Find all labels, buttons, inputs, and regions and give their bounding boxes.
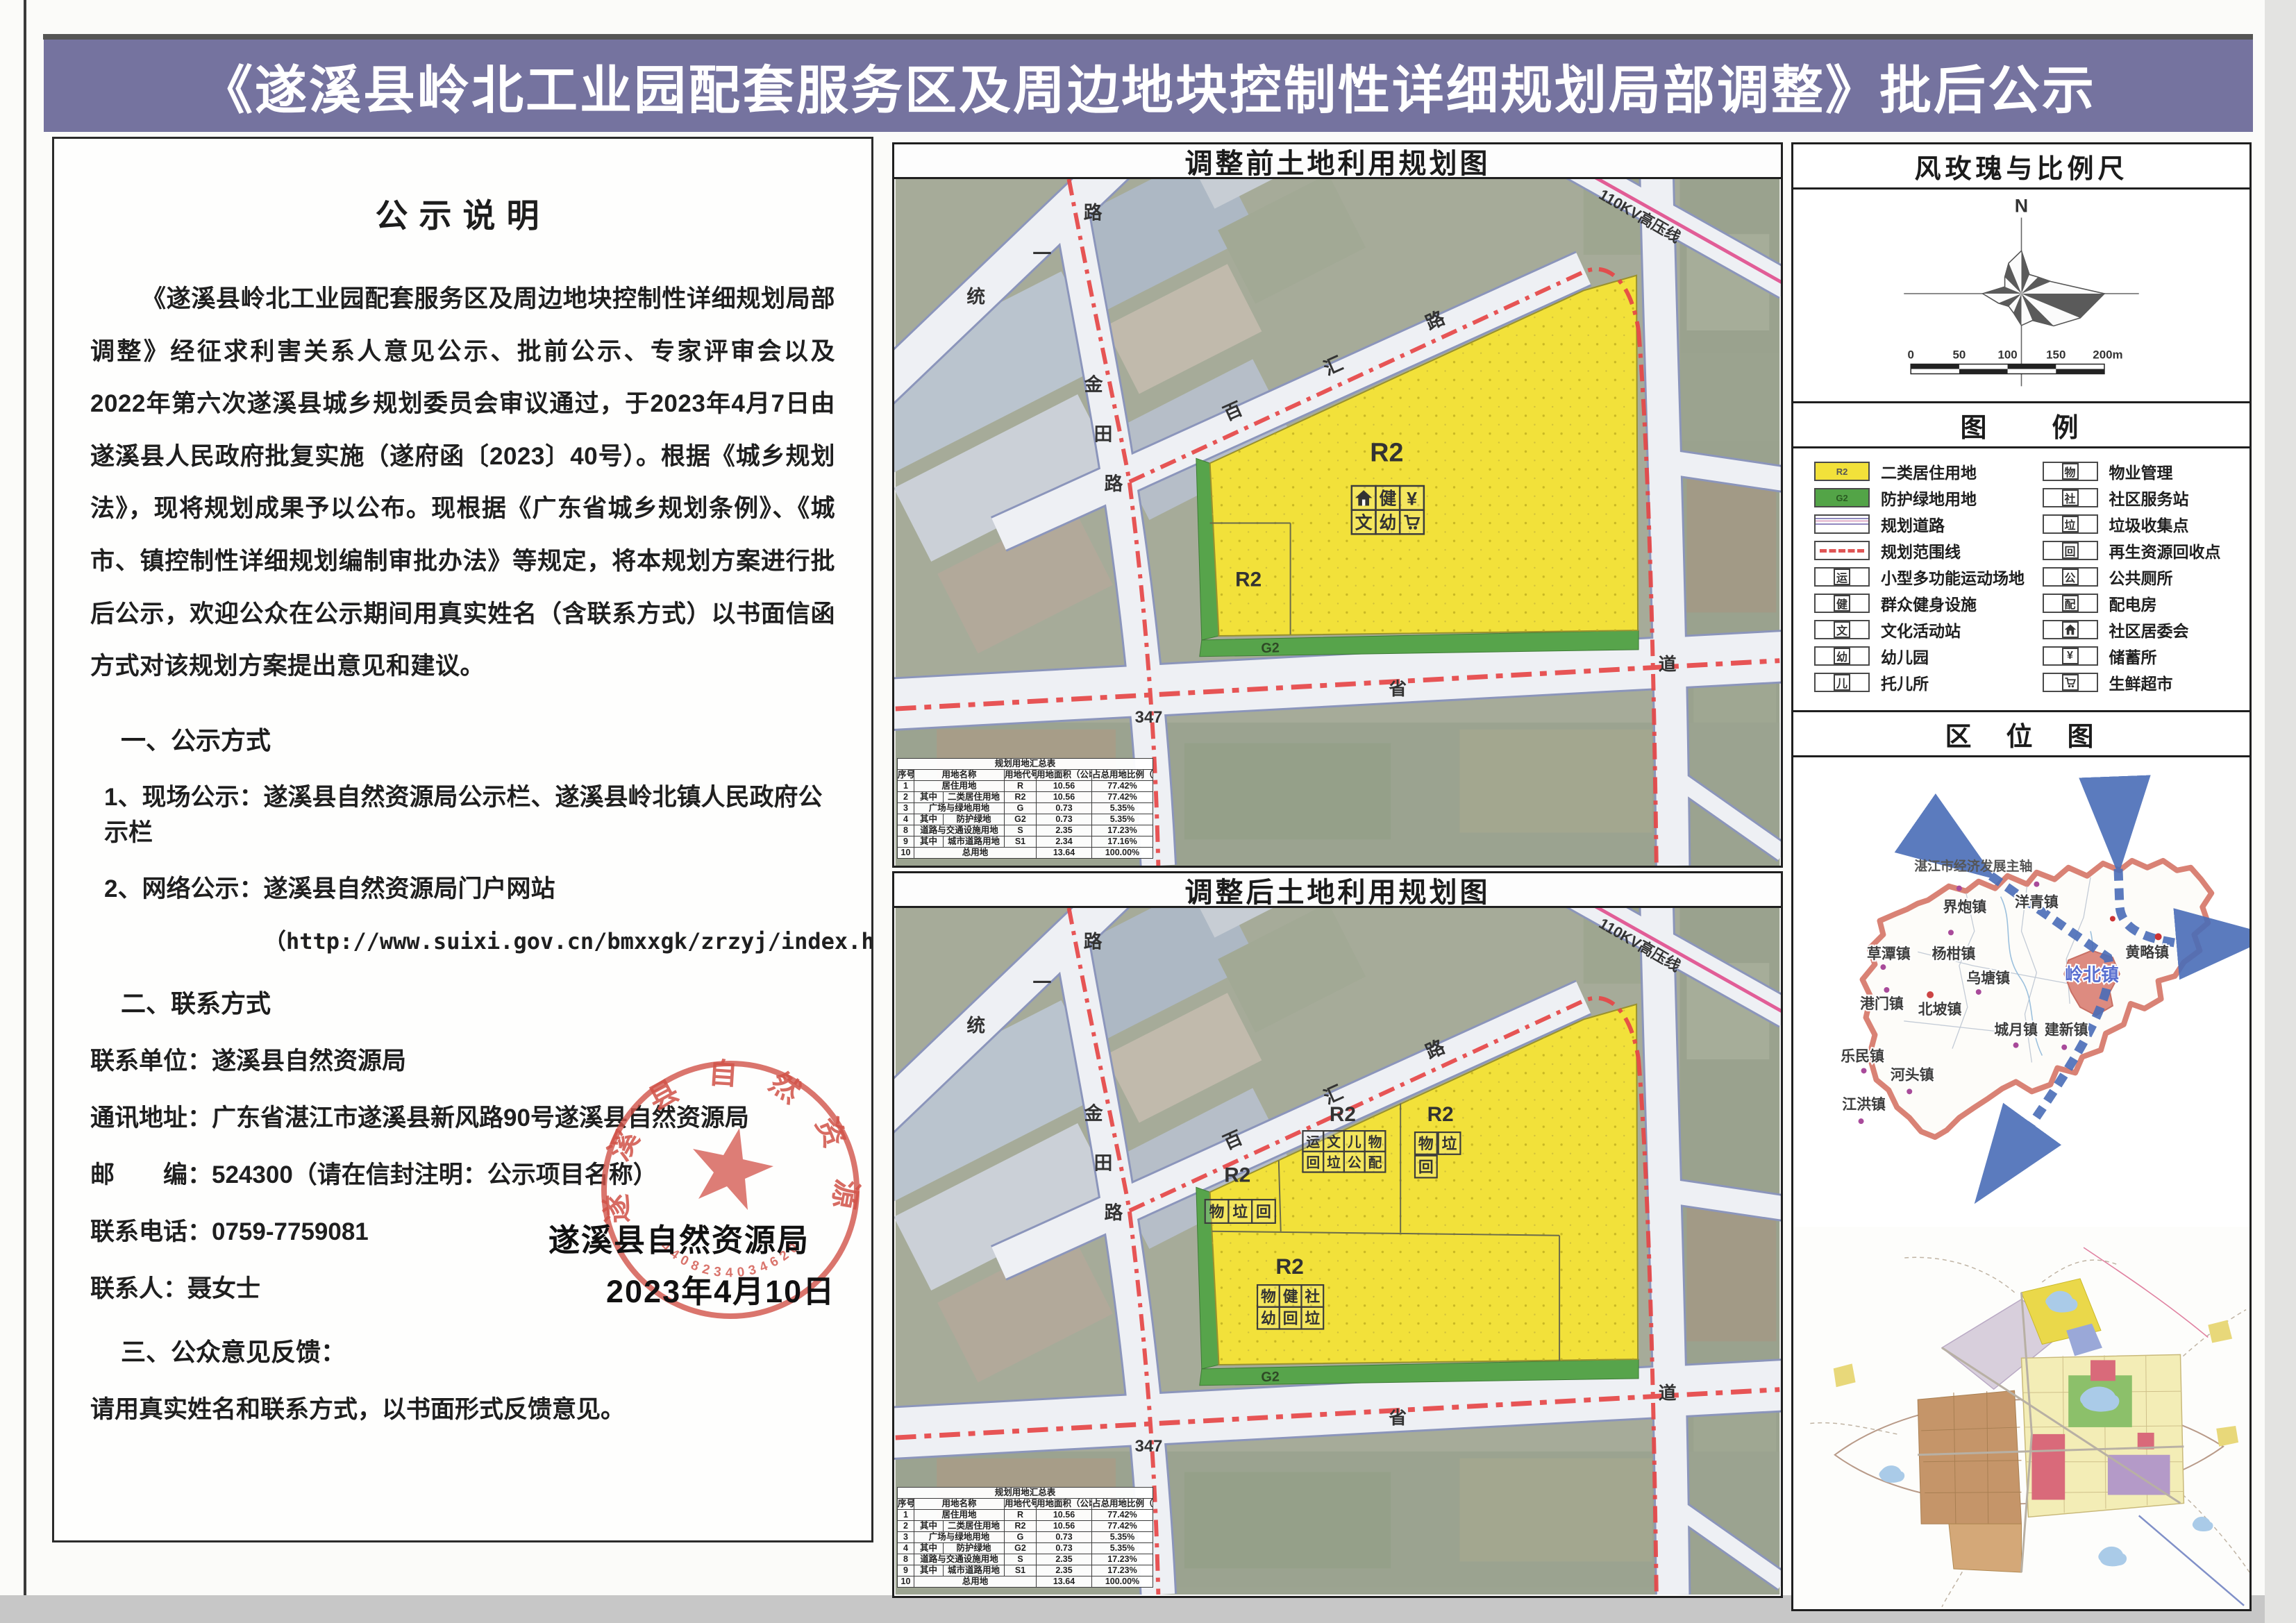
district-brown — [1918, 1390, 2021, 1524]
svg-text:100: 100 — [1997, 348, 2017, 362]
svg-text:儿: 儿 — [1347, 1135, 1361, 1150]
svg-text:物: 物 — [1209, 1203, 1225, 1220]
legend-right-column: 物 物业管理 社 社区服务站 垃 垃圾收集点 回 再生资源回收点 — [2022, 458, 2250, 696]
supermarket-icon — [2062, 674, 2079, 691]
page-title: 《遂溪县岭北工业园配套服务区及周边地块控制性详细规划局部调整》批后公示 — [201, 48, 2096, 124]
table-row: 1居住用地R10.5677.42% — [898, 781, 1153, 792]
svg-text:0: 0 — [1908, 348, 1914, 362]
facility-icon-grid: 健 ¥ 文 幼 — [1352, 486, 1424, 534]
fitness-icon: 健 — [1834, 595, 1850, 612]
table-cell: G — [1005, 1532, 1037, 1543]
legend-item-property: 物 物业管理 — [2022, 458, 2250, 485]
table-cell: 100.00% — [1092, 848, 1153, 859]
table-cell: 77.42% — [1092, 1510, 1153, 1521]
svg-text:物: 物 — [1261, 1288, 1276, 1305]
table-row: 2其中二类居住用地R210.5677.42% — [898, 1521, 1153, 1532]
community-committee-icon — [2062, 621, 2079, 638]
seal-date-line: 2023年4月10日 — [606, 1266, 835, 1311]
table-cell: 道路与交通设施用地 — [914, 825, 1005, 836]
svg-text:200m: 200m — [2093, 348, 2122, 362]
notice-heading: 公示说明 — [90, 189, 835, 237]
svg-text:配: 配 — [1368, 1156, 1382, 1171]
svg-text:垃: 垃 — [1305, 1310, 1320, 1327]
table-cell: 3 — [898, 1532, 914, 1543]
table-cell: 二类居住用地 — [944, 792, 1005, 803]
feedback-line: 请用真实姓名和联系方式，以书面形式反馈意见。 — [90, 1390, 835, 1425]
table-cell: 8 — [898, 1554, 914, 1565]
north-label: N — [2015, 196, 2028, 217]
svg-text:洋青镇: 洋青镇 — [2015, 894, 2059, 911]
table-cell: 规划用地汇总表 — [898, 759, 1153, 770]
table-row: 规划用地汇总表 — [898, 1488, 1153, 1499]
table-cell: 防护绿地 — [944, 814, 1005, 825]
r2-bottom-label: R2 — [1275, 1254, 1304, 1279]
svg-text:路: 路 — [1084, 201, 1103, 223]
table-cell: 2.35 — [1037, 1565, 1092, 1576]
map-after-area: 统 一 路 金 田 路 百 汇 路 110KV高压线 347 省 道 G2 R2… — [894, 908, 1781, 1595]
table-cell: 10 — [898, 848, 914, 859]
svg-text:乐民镇: 乐民镇 — [1841, 1049, 1884, 1065]
svg-text:道: 道 — [1659, 1383, 1677, 1404]
table-cell: 13.64 — [1037, 848, 1092, 859]
table-cell: 其中 — [914, 1543, 944, 1554]
table-cell: 77.42% — [1092, 792, 1153, 803]
table-cell: 10.56 — [1037, 1510, 1092, 1521]
table-cell: 4 — [898, 1543, 914, 1554]
windrose-graphic: N 0 50 100 150 200m — [1793, 190, 2249, 401]
table-cell: 100.00% — [1092, 1576, 1153, 1588]
svg-text:幼: 幼 — [1379, 513, 1396, 532]
landuse-summary-table-after: 规划用地汇总表序号用地名称用地代号用地面积（公顷）占总用地比例（%）1居住用地R… — [897, 1487, 1153, 1588]
svg-text:垃: 垃 — [1442, 1135, 1457, 1152]
boundary-swatch — [1814, 541, 1870, 560]
table-cell: 5.35% — [1092, 1543, 1153, 1554]
svg-text:物: 物 — [1418, 1135, 1434, 1152]
road-swatch — [1814, 514, 1870, 534]
table-cell: 用地代号 — [1005, 770, 1037, 781]
legend-item-road: 规划道路 — [1793, 511, 2022, 537]
section1-item1: 1、现场公示：遂溪县自然资源局公示栏、遂溪县岭北镇人民政府公示栏 — [104, 777, 835, 848]
legend-item-boundary: 规划范围线 — [1793, 537, 2022, 564]
svg-text:一: 一 — [1032, 973, 1051, 993]
table-cell: 其中 — [914, 1565, 944, 1576]
property-icon: 物 — [2062, 463, 2079, 480]
table-row: 3广场与绿地用地G0.735.35% — [898, 1532, 1153, 1543]
table-cell: 序号 — [898, 1499, 914, 1510]
table-cell: 占总用地比例（%） — [1092, 1499, 1153, 1510]
contact-unit: 联系单位：遂溪县自然资源局 — [90, 1041, 835, 1077]
table-cell: 77.42% — [1092, 1521, 1153, 1532]
table-cell: 3 — [898, 803, 914, 814]
table-cell: 2.34 — [1037, 836, 1092, 848]
table-cell: 用地代号 — [1005, 1499, 1037, 1510]
table-cell: 13.64 — [1037, 1576, 1092, 1588]
svg-text:江洪镇: 江洪镇 — [1842, 1097, 1886, 1113]
svg-text:界炮镇: 界炮镇 — [1943, 899, 1987, 916]
legend-item-fitness: 健 群众健身设施 — [1793, 590, 2022, 616]
table-row: 8道路与交通设施用地S2.3517.23% — [898, 825, 1153, 836]
kindergarten-icon: 幼 — [1834, 648, 1850, 664]
district-brown-south — [1949, 1524, 2022, 1572]
r2-right-label: R2 — [1427, 1103, 1454, 1126]
table-cell: 1 — [898, 781, 914, 792]
map-before-title: 调整前土地利用规划图 — [1185, 141, 1491, 181]
table-cell: 0.73 — [1037, 814, 1092, 825]
table-cell: 用地面积（公顷） — [1037, 770, 1092, 781]
r2-left-label: R2 — [1224, 1163, 1250, 1186]
lingbei-label: 岭北镇 — [2065, 965, 2119, 985]
table-row: 序号用地名称用地代号用地面积（公顷）占总用地比例（%） — [898, 770, 1153, 781]
svg-text:50: 50 — [1953, 348, 1966, 362]
map-after-titlebar: 调整后土地利用规划图 — [894, 873, 1781, 908]
svg-text:北坡镇: 北坡镇 — [1918, 1001, 1962, 1018]
location-header: 区 位 图 — [1793, 712, 2249, 757]
table-cell: R — [1005, 781, 1037, 792]
table-cell: 5.35% — [1092, 1532, 1153, 1543]
table-row: 3广场与绿地用地G0.735.35% — [898, 803, 1153, 814]
legend-item-sports: 运 小型多功能运动场地 — [1793, 564, 2022, 590]
legend-item-garbage: 垃 垃圾收集点 — [2022, 511, 2250, 537]
table-cell: 0.73 — [1037, 803, 1092, 814]
svg-text:健: 健 — [1283, 1288, 1298, 1305]
wind-rose-icon — [1983, 251, 2104, 326]
section1-item2: 2、网络公示：遂溪县自然资源局门户网站 — [104, 869, 835, 905]
table-cell: 城市道路用地 — [944, 1565, 1005, 1576]
table-cell: 17.23% — [1092, 825, 1153, 836]
table-cell: 占总用地比例（%） — [1092, 770, 1153, 781]
section2-title: 二、联系方式 — [121, 984, 835, 1020]
section3-title: 三、公众意见反馈： — [121, 1332, 835, 1368]
table-cell: 4 — [898, 814, 914, 825]
axis-label: 湛江市经济发展主轴 — [1914, 858, 2032, 874]
table-row: 10总用地13.64100.00% — [898, 848, 1153, 859]
table-row: 8道路与交通设施用地S2.3517.23% — [898, 1554, 1153, 1565]
r2-swatch: R2 — [1814, 462, 1870, 481]
svg-text:金: 金 — [1084, 1102, 1103, 1124]
svg-text:建新镇: 建新镇 — [2045, 1022, 2088, 1038]
windrose-header: 风玫瑰与比例尺 — [1793, 144, 2249, 190]
svg-text:物: 物 — [1368, 1134, 1382, 1150]
table-row: 9其中城市道路用地S12.3417.16% — [898, 836, 1153, 848]
svg-text:¥: ¥ — [1407, 489, 1417, 510]
svg-text:省: 省 — [1389, 679, 1407, 699]
legend-item-savings: ¥ 储蓄所 — [2022, 643, 2250, 669]
svg-text:G2: G2 — [1261, 640, 1280, 656]
svg-text:垃: 垃 — [1232, 1203, 1248, 1220]
table-cell: 5.35% — [1092, 803, 1153, 814]
legend-item-kindergarten: 幼 幼儿园 — [1793, 643, 2022, 669]
table-cell: 9 — [898, 836, 914, 848]
table-cell: 其中 — [914, 1521, 944, 1532]
table-cell: 总用地 — [914, 1576, 1037, 1588]
legend-item-committee: 社区居委会 — [2022, 616, 2250, 643]
svg-text:路: 路 — [1084, 930, 1103, 952]
table-cell: 防护绿地 — [944, 1543, 1005, 1554]
table-cell: 其中 — [914, 836, 944, 848]
table-row: 1居住用地R10.5677.42% — [898, 1510, 1153, 1521]
map-before-area: 统 一 路 金 田 路 百 汇 路 110KV高压线 347 省 道 G2 R2… — [894, 179, 1781, 866]
table-cell: 二类居住用地 — [944, 1521, 1005, 1532]
legend-item-recycle: 回 再生资源回收点 — [2022, 537, 2250, 564]
svg-text:黄略镇: 黄略镇 — [2125, 944, 2169, 961]
table-row: 9其中城市道路用地S12.3517.23% — [898, 1565, 1153, 1576]
table-cell: 1 — [898, 1510, 914, 1521]
svg-text:路: 路 — [1105, 1202, 1123, 1223]
legend-item-g2: G2 防护绿地用地 — [1793, 485, 2022, 511]
master-plan-minimap — [1793, 1226, 2249, 1609]
svg-text:城月镇: 城月镇 — [1994, 1022, 2038, 1038]
legend-item-toilet: 公 公共厕所 — [2022, 564, 2250, 590]
table-cell: G — [1005, 803, 1037, 814]
windrose-title: 风玫瑰与比例尺 — [1914, 147, 2128, 185]
g2-swatch: G2 — [1814, 488, 1870, 507]
legend-left-column: R2 二类居住用地 G2 防护绿地用地 规划道路 规划范围线 — [1793, 458, 2022, 696]
map-before-titlebar: 调整前土地利用规划图 — [894, 144, 1781, 179]
right-column: 风玫瑰与比例尺 N 0 50 100 150 200m — [1791, 142, 2252, 1611]
legend-title: 图 例 — [1960, 406, 2082, 444]
scanned-notice-page: 《遂溪县岭北工业园配套服务区及周边地块控制性详细规划局部调整》批后公示 公示说明… — [0, 0, 2296, 1623]
legend-item-nursery: 儿 托儿所 — [1793, 669, 2022, 696]
legend-header: 图 例 — [1793, 403, 2249, 448]
legend-item-culture: 文 文化活动站 — [1793, 616, 2022, 643]
notice-paragraph: 《遂溪县岭北工业园配套服务区及周边地块控制性详细规划局部调整》经征求利害关系人意… — [90, 273, 835, 693]
svg-text:幼: 幼 — [1261, 1310, 1276, 1327]
r2-sub-label: R2 — [1235, 569, 1262, 591]
table-cell: S — [1005, 825, 1037, 836]
power-room-icon: 配 — [2062, 595, 2079, 612]
table-row: 序号用地名称用地代号用地面积（公顷）占总用地比例（%） — [898, 1499, 1153, 1510]
svg-text:田: 田 — [1094, 1153, 1113, 1174]
table-cell: S — [1005, 1554, 1037, 1565]
section1-title: 一、公示方式 — [121, 721, 835, 757]
contact-zip: 邮 编：524300（请在信封注明：公示项目名称） — [90, 1155, 835, 1191]
table-cell: 5.35% — [1092, 814, 1153, 825]
table-cell: 居住用地 — [914, 1510, 1005, 1521]
garbage-icon: 垃 — [2062, 516, 2079, 532]
notice-panel: 公示说明 《遂溪县岭北工业园配套服务区及周边地块控制性详细规划局部调整》经征求利… — [52, 137, 873, 1542]
svg-text:347: 347 — [1135, 708, 1163, 727]
table-cell: 用地名称 — [914, 770, 1005, 781]
svg-text:回: 回 — [1306, 1156, 1320, 1171]
svg-text:河头镇: 河头镇 — [1891, 1067, 1934, 1083]
legend-item-power: 配 配电房 — [2022, 590, 2250, 616]
table-cell: R2 — [1005, 1521, 1037, 1532]
table-cell: G2 — [1005, 814, 1037, 825]
svg-text:347: 347 — [1135, 1437, 1163, 1456]
table-cell: 77.42% — [1092, 781, 1153, 792]
svg-text:文: 文 — [1327, 1134, 1341, 1150]
svg-text:统: 统 — [966, 1014, 985, 1036]
table-cell: 居住用地 — [914, 781, 1005, 792]
svg-text:金: 金 — [1084, 373, 1103, 395]
contact-address: 通讯地址：广东省湛江市遂溪县新风路90号遂溪县自然资源局 — [90, 1098, 835, 1134]
table-cell: 0.73 — [1037, 1532, 1092, 1543]
document-header: 《遂溪县岭北工业园配套服务区及周边地块控制性详细规划局部调整》批后公示 — [44, 40, 2253, 132]
table-cell: 其中 — [914, 792, 944, 803]
scan-edge-right — [2265, 0, 2296, 1623]
svg-text:省: 省 — [1389, 1408, 1407, 1428]
legend-section: R2 二类居住用地 G2 防护绿地用地 规划道路 规划范围线 — [1793, 448, 2249, 712]
seal-org-line: 遂溪县自然资源局 — [548, 1215, 810, 1260]
svg-text:150: 150 — [2046, 348, 2065, 362]
map-panel-after: 调整后土地利用规划图 — [892, 871, 1783, 1598]
table-cell: 2 — [898, 1521, 914, 1532]
table-cell: 17.16% — [1092, 836, 1153, 848]
svg-text:健: 健 — [1379, 489, 1396, 509]
county-location-map: 湛江市经济发展主轴 界炮镇 洋青镇 黄略镇 草潭镇 杨柑镇 乌塘镇 港门镇 — [1793, 757, 2249, 1222]
table-cell: R — [1005, 1510, 1037, 1521]
table-cell: 其中 — [914, 814, 944, 825]
table-cell: 广场与绿地用地 — [914, 1532, 1005, 1543]
legend-item-r2: R2 二类居住用地 — [1793, 458, 2022, 485]
svg-text:社: 社 — [1305, 1288, 1320, 1305]
community-service-icon: 社 — [2062, 489, 2079, 506]
table-cell: 10 — [898, 1576, 914, 1588]
location-section: 湛江市经济发展主轴 界炮镇 洋青镇 黄略镇 草潭镇 杨柑镇 乌塘镇 港门镇 — [1793, 757, 2249, 1609]
table-cell: 用地面积（公顷） — [1037, 1499, 1092, 1510]
savings-icon: ¥ — [2062, 648, 2079, 664]
map-after-title: 调整后土地利用规划图 — [1185, 870, 1491, 910]
svg-text:回: 回 — [1418, 1159, 1434, 1176]
table-cell: 17.23% — [1092, 1565, 1153, 1576]
legend-item-community-service: 社 社区服务站 — [2022, 485, 2250, 511]
r2-main-label: R2 — [1370, 437, 1403, 466]
sports-icon: 运 — [1834, 569, 1850, 585]
culture-icon: 文 — [1834, 621, 1850, 638]
location-title: 区 位 图 — [1945, 715, 2097, 753]
table-cell: 城市道路用地 — [944, 836, 1005, 848]
svg-text:垃: 垃 — [1327, 1155, 1341, 1171]
svg-text:道: 道 — [1659, 654, 1677, 675]
svg-text:G2: G2 — [1261, 1369, 1280, 1385]
legend-item-supermarket: 生鲜超市 — [2022, 669, 2250, 696]
table-cell: 用地名称 — [914, 1499, 1005, 1510]
table-row: 4其中防护绿地G20.735.35% — [898, 814, 1153, 825]
table-cell: 序号 — [898, 770, 914, 781]
table-cell: 2 — [898, 792, 914, 803]
table-cell: 0.73 — [1037, 1543, 1092, 1554]
svg-text:杨柑镇: 杨柑镇 — [1932, 945, 1976, 962]
table-cell: 2.35 — [1037, 825, 1092, 836]
block-red-1 — [2031, 1434, 2065, 1500]
table-row: 规划用地汇总表 — [898, 759, 1153, 770]
svg-text:港门镇: 港门镇 — [1860, 995, 1904, 1012]
table-cell: 17.23% — [1092, 1554, 1153, 1565]
windrose-section: N 0 50 100 150 200m — [1793, 190, 2249, 403]
svg-text:一: 一 — [1032, 244, 1051, 264]
scan-edge-top — [43, 34, 2253, 40]
table-cell: 8 — [898, 825, 914, 836]
svg-text:文: 文 — [1355, 512, 1373, 532]
svg-text:回: 回 — [1256, 1203, 1271, 1220]
map-panel-before: 调整前土地利用规划图 — [892, 142, 1783, 868]
toilet-icon: 公 — [2062, 569, 2079, 585]
svg-text:路: 路 — [1105, 473, 1123, 494]
svg-text:统: 统 — [966, 285, 985, 307]
table-row: 2其中二类居住用地R210.5677.42% — [898, 792, 1153, 803]
svg-text:回: 回 — [1283, 1310, 1298, 1327]
table-cell: 总用地 — [914, 848, 1037, 859]
nursery-icon: 儿 — [1834, 674, 1850, 691]
table-cell: 规划用地汇总表 — [898, 1488, 1153, 1499]
svg-text:乌塘镇: 乌塘镇 — [1966, 970, 2010, 986]
table-cell: 9 — [898, 1565, 914, 1576]
landuse-summary-table-before: 规划用地汇总表序号用地名称用地代号用地面积（公顷）占总用地比例（%）1居住用地R… — [897, 758, 1153, 859]
scan-edge-left — [24, 0, 26, 1597]
notice-content: 公示说明 《遂溪县岭北工业园配套服务区及周边地块控制性详细规划局部调整》经征求利… — [54, 189, 871, 1542]
table-cell: 广场与绿地用地 — [914, 803, 1005, 814]
table-cell: R2 — [1005, 792, 1037, 803]
scale-bar: 0 50 100 150 200m — [1908, 348, 2123, 374]
svg-text:草潭镇: 草潭镇 — [1867, 946, 1911, 962]
block-red-2 — [2090, 1360, 2115, 1381]
table-cell: 10.56 — [1037, 792, 1092, 803]
recycle-icon: 回 — [2062, 542, 2079, 559]
table-row: 4其中防护绿地G20.735.35% — [898, 1543, 1153, 1554]
svg-text:运: 运 — [1306, 1135, 1320, 1150]
table-cell: 10.56 — [1037, 1521, 1092, 1532]
table-row: 10总用地13.64100.00% — [898, 1576, 1153, 1588]
table-cell: 道路与交通设施用地 — [914, 1554, 1005, 1565]
notice-url: （http://www.suixi.gov.cn/bmxxgk/zrzyj/in… — [264, 924, 835, 956]
table-cell: S1 — [1005, 836, 1037, 848]
r2-mid-label: R2 — [1330, 1103, 1356, 1126]
table-cell: 10.56 — [1037, 781, 1092, 792]
svg-text:公: 公 — [1348, 1156, 1361, 1171]
svg-text:田: 田 — [1094, 424, 1113, 445]
table-cell: S1 — [1005, 1565, 1037, 1576]
table-cell: G2 — [1005, 1543, 1037, 1554]
table-cell: 2.35 — [1037, 1554, 1092, 1565]
